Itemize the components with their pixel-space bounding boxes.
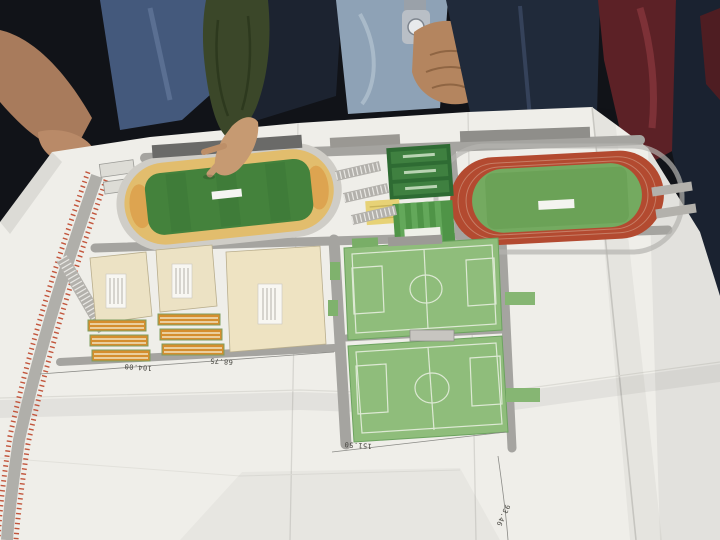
orange-court bbox=[92, 350, 150, 361]
court-row-group-a bbox=[88, 320, 150, 361]
athletics-track bbox=[448, 148, 666, 247]
fingertip-shadow bbox=[203, 175, 215, 180]
orange-court bbox=[158, 314, 220, 325]
infield-pitch bbox=[485, 166, 630, 229]
training-pitches-block bbox=[386, 144, 453, 200]
plot-c-label-chip bbox=[258, 284, 282, 324]
photo-canvas: 104.00 68.75 151.50 93.46 bbox=[0, 0, 720, 540]
orange-court bbox=[90, 335, 148, 346]
green-stand bbox=[328, 300, 338, 316]
green-stand bbox=[506, 388, 540, 402]
court-row-group-b bbox=[158, 314, 224, 355]
orange-court bbox=[160, 329, 222, 340]
football-pitch-2 bbox=[348, 336, 508, 442]
green-stand bbox=[352, 237, 378, 247]
green-stand bbox=[505, 292, 535, 305]
track-name-label-chip bbox=[538, 199, 574, 210]
dimension-68: 68.75 bbox=[210, 356, 234, 366]
orange-court bbox=[88, 320, 146, 331]
plot-a-label-chip bbox=[106, 274, 126, 308]
photo-of-site-plan-review: 104.00 68.75 151.50 93.46 bbox=[0, 0, 720, 540]
green-stand bbox=[330, 262, 340, 280]
football-pitch-1 bbox=[344, 238, 502, 340]
between-pitch-building bbox=[410, 330, 454, 341]
plot-b-label-chip bbox=[172, 264, 192, 298]
orange-court bbox=[162, 344, 224, 355]
